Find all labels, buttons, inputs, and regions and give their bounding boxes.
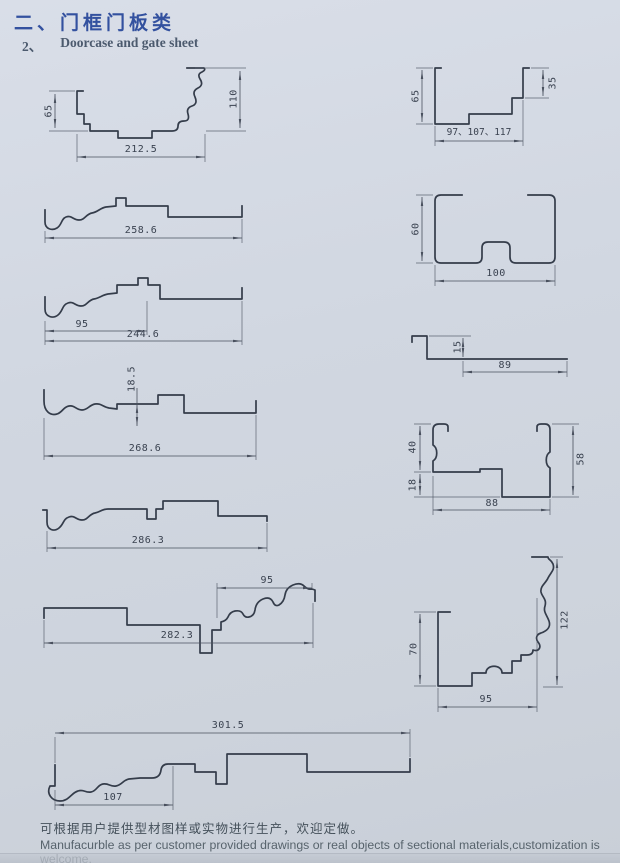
dim-label-height-left: 65 <box>44 104 55 117</box>
dim-label-height-left: 65 <box>411 89 422 102</box>
dim-label-width-options: 97、107、117 <box>447 127 512 138</box>
figure-corner-moulding-profile: 70 122 95 <box>409 557 571 712</box>
catalog-page: 二、门框门板类 2、 Doorcase and gate sheet 65 <box>0 0 620 863</box>
dim-label-step: 18.5 <box>127 366 138 392</box>
profile-outline <box>435 68 529 124</box>
dim-label-width: 244.6 <box>127 329 160 340</box>
profile-outline <box>44 390 256 414</box>
dimension-annotations: 65 110 212.5 <box>44 68 247 162</box>
dim-label-total-height: 58 <box>576 452 587 465</box>
dim-label-segment: 95 <box>260 575 273 586</box>
figure-hook-strip-profile: 15 89 <box>412 336 567 377</box>
dim-label-width: 258.6 <box>125 225 158 236</box>
figure-double-hook-channel-profile: 40 18 58 88 <box>408 424 587 515</box>
figure-doorframe-profile-5: 286.3 <box>43 501 267 552</box>
dim-label-height-right: 110 <box>229 89 240 109</box>
footer-note-chinese: 可根据用户提供型材图样或实物进行生产，欢迎定做。 <box>40 818 600 837</box>
dimension-annotations: 301.5 107 <box>55 720 410 810</box>
dim-label-width: 89 <box>498 360 511 371</box>
profile-drawings: 65 110 212.5 65 35 <box>0 0 620 863</box>
dim-label-width: 95 <box>479 694 492 705</box>
dim-label-segment: 107 <box>103 792 123 803</box>
profile-outline <box>43 501 267 530</box>
dimension-annotations: 60 100 <box>411 195 556 286</box>
dim-label-width: 268.6 <box>129 443 162 454</box>
profile-outline <box>433 424 550 497</box>
dim-label-width: 100 <box>486 268 506 279</box>
dim-label-lower: 18 <box>408 478 419 491</box>
dim-label-height: 60 <box>411 222 422 235</box>
dimension-annotations: 15 89 <box>429 336 567 377</box>
dimension-annotations: 95 244.6 <box>45 301 242 345</box>
dim-label-height-right: 122 <box>560 610 571 630</box>
dim-label-height: 15 <box>453 340 464 353</box>
figure-doorframe-profile-1: 65 110 212.5 <box>44 68 247 162</box>
figure-doorframe-profile-2: 258.6 <box>45 198 242 243</box>
dim-label-height-right: 35 <box>548 76 559 89</box>
dimension-annotations: 65 35 97、107、117 <box>411 68 559 146</box>
dim-label-width: 282.3 <box>161 630 194 641</box>
figure-hat-channel-profile: 60 100 <box>411 195 556 286</box>
page-bottom-edge <box>0 853 620 863</box>
figure-doorframe-profile-4: 18.5 268.6 <box>44 366 256 460</box>
figure-doorframe-profile-r1: 65 35 97、107、117 <box>411 68 559 146</box>
dim-label-width: 286.3 <box>132 535 165 546</box>
dim-label-width: 212.5 <box>125 144 158 155</box>
profile-outline <box>435 195 555 263</box>
profile-outline <box>45 278 242 317</box>
figure-doorframe-profile-3: 95 244.6 <box>45 278 242 345</box>
profile-outline <box>77 68 205 138</box>
dim-label-segment: 95 <box>75 319 88 330</box>
dim-label-width: 88 <box>485 498 498 509</box>
dimension-annotations: 286.3 <box>47 523 267 552</box>
dim-label-height-left: 70 <box>409 642 420 655</box>
figure-doorframe-profile-7: 301.5 107 <box>49 720 410 810</box>
dim-label-width: 301.5 <box>212 720 245 731</box>
profile-outline <box>412 336 567 359</box>
dim-label-upper: 40 <box>408 440 419 453</box>
dimension-annotations: 258.6 <box>45 219 242 243</box>
profile-outline <box>438 557 554 686</box>
figure-doorframe-profile-6: 95 282.3 <box>44 575 315 653</box>
dimension-annotations: 95 282.3 <box>44 575 313 648</box>
